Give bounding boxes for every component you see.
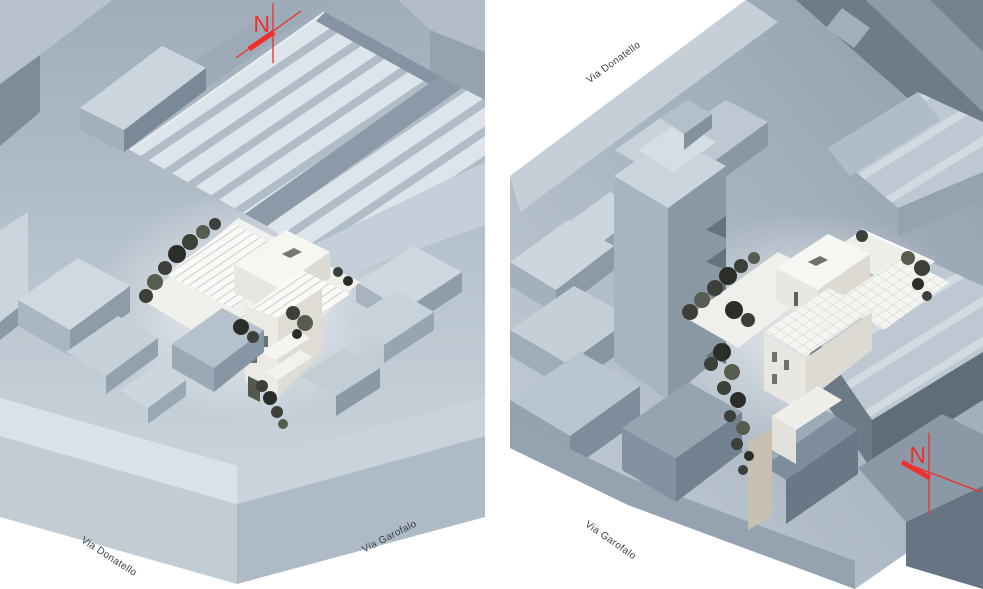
figure-canvas: N Via Donatello Via Garofalo [0,0,983,589]
axon-render-left: N [0,0,485,589]
window [772,352,777,362]
axon-view-right: N Via Donatello Via Garofalo [510,0,983,589]
north-letter: N [909,442,926,468]
north-letter: N [253,11,270,37]
lower-wall [748,428,772,530]
door-slit [794,292,798,306]
axon-render-right: N [510,0,983,589]
window [784,360,789,370]
axon-view-left: N Via Donatello Via Garofalo [0,0,485,589]
window [772,374,777,384]
